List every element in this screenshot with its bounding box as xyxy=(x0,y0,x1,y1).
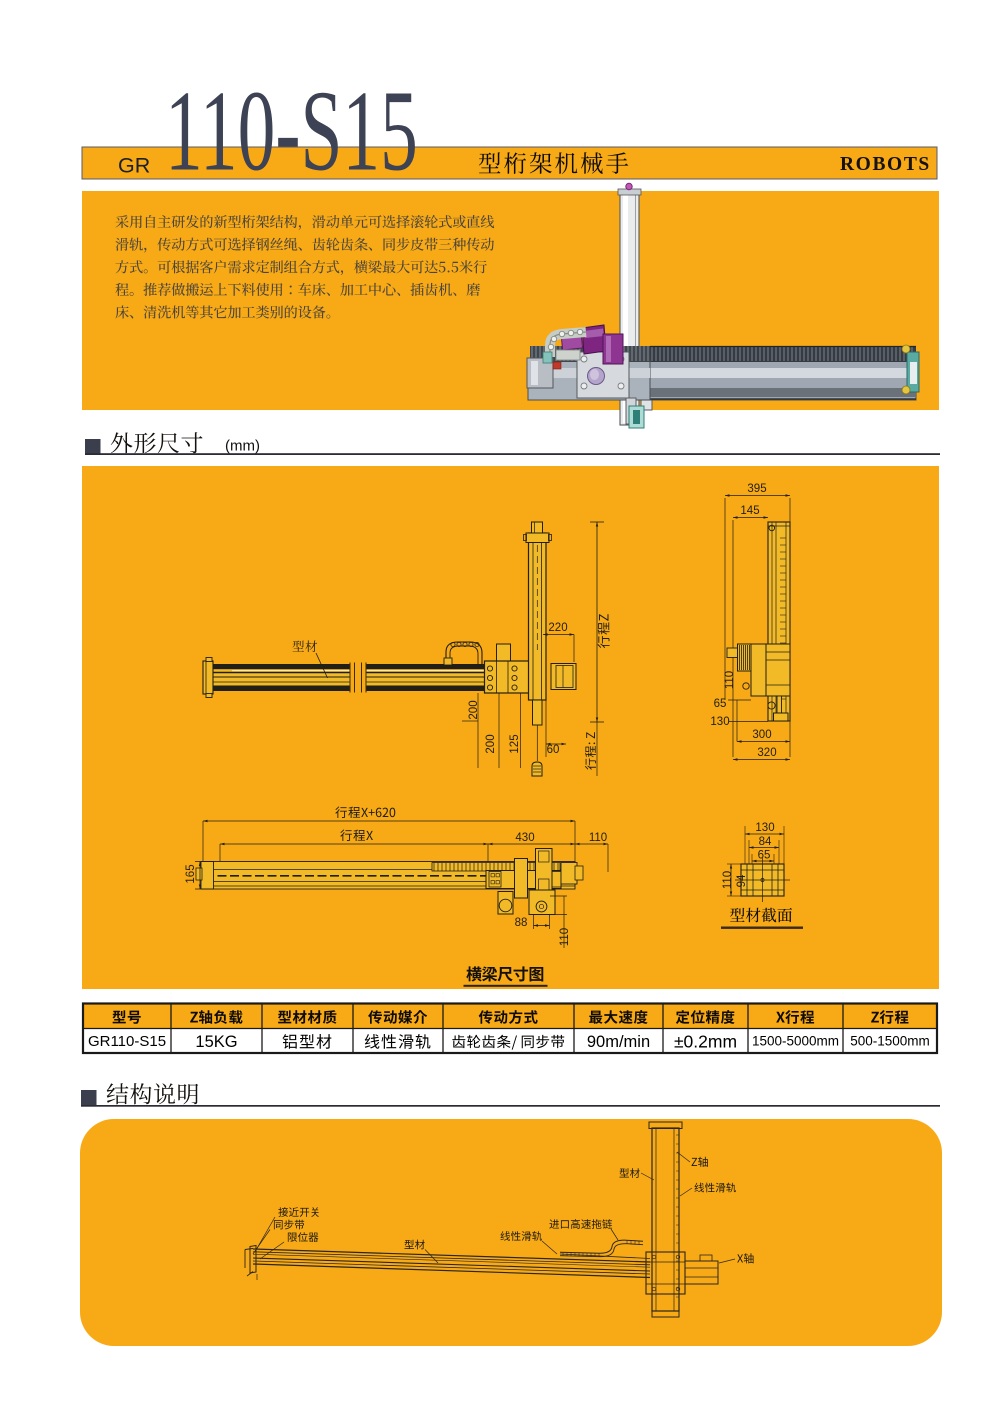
svg-text:90m/min: 90m/min xyxy=(587,1033,650,1051)
svg-text:300: 300 xyxy=(752,729,771,741)
svg-text:88: 88 xyxy=(515,917,528,929)
svg-text:65: 65 xyxy=(758,850,771,862)
svg-text:220: 220 xyxy=(548,622,567,634)
svg-text:320: 320 xyxy=(757,747,776,759)
svg-text:±0.2mm: ±0.2mm xyxy=(674,1032,737,1052)
svg-text:GR110-S15: GR110-S15 xyxy=(88,1033,166,1050)
svg-text:110: 110 xyxy=(559,928,571,946)
svg-text:15KG: 15KG xyxy=(195,1033,237,1051)
svg-text:110: 110 xyxy=(722,871,734,889)
svg-text:165: 165 xyxy=(185,864,197,883)
svg-text:145: 145 xyxy=(740,505,759,517)
svg-text:ROBOTS: ROBOTS xyxy=(840,154,931,175)
svg-text:130: 130 xyxy=(710,716,729,728)
svg-text:(mm): (mm) xyxy=(225,438,260,455)
svg-text:110: 110 xyxy=(724,671,736,689)
svg-text:65: 65 xyxy=(714,698,727,710)
svg-text:110: 110 xyxy=(589,832,607,844)
svg-text:500-1500mm: 500-1500mm xyxy=(850,1034,930,1049)
svg-text:60: 60 xyxy=(547,744,560,756)
svg-text:130: 130 xyxy=(755,822,774,834)
svg-text:200: 200 xyxy=(485,734,497,753)
svg-text:1500-5000mm: 1500-5000mm xyxy=(752,1034,839,1049)
svg-text:94: 94 xyxy=(736,874,748,887)
svg-text:395: 395 xyxy=(747,483,766,495)
svg-text:430: 430 xyxy=(515,832,534,844)
svg-text:110-S15: 110-S15 xyxy=(165,68,418,196)
svg-text:125: 125 xyxy=(509,734,521,753)
svg-text:GR: GR xyxy=(118,154,150,178)
svg-text:84: 84 xyxy=(759,836,772,848)
